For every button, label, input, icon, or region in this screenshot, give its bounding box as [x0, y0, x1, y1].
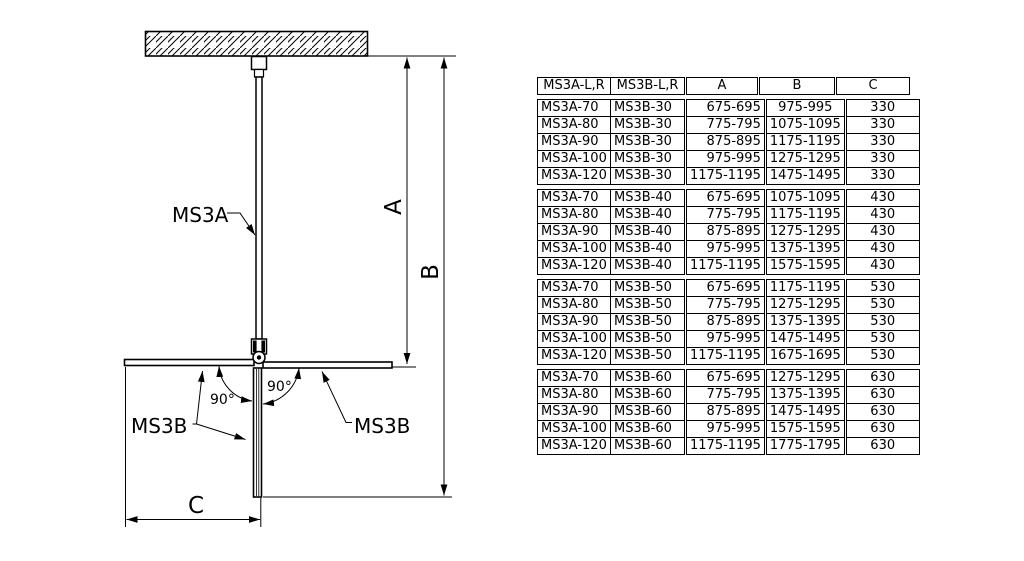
table-cell: MS3A-70 [538, 190, 611, 207]
table-cell: 530 [845, 314, 919, 331]
table-row: MS3A-120MS3B-501175-11951675-1695530 [538, 348, 920, 365]
table-cell: 675-695 [686, 280, 766, 297]
spec-table-block: MS3A-70MS3B-60675-6951275-1295630MS3A-80… [537, 369, 920, 455]
table-cell: 630 [845, 370, 919, 387]
table-cell: 975-995 [686, 331, 766, 348]
table-cell: MS3B-30 [611, 117, 686, 134]
table-cell: MS3B-60 [611, 387, 686, 404]
table-cell: MS3A-90 [538, 224, 611, 241]
table-cell: MS3A-90 [538, 314, 611, 331]
table-cell: 630 [845, 404, 919, 421]
table-cell: 875-895 [686, 134, 766, 151]
table-cell: 1575-1595 [765, 421, 845, 438]
table-cell: 675-695 [686, 370, 766, 387]
panel-ms3b-right [263, 362, 392, 368]
installation-diagram: A B C 90° 90° MS3A MS3B MS3B [0, 0, 530, 561]
table-header-cell: C [836, 78, 910, 95]
table-row: MS3A-80MS3B-40775-7951175-1195430 [538, 207, 920, 224]
table-cell: MS3B-40 [611, 190, 686, 207]
table-cell: 1275-1295 [765, 370, 845, 387]
table-cell: 330 [845, 151, 919, 168]
table-cell: MS3A-80 [538, 387, 611, 404]
spec-table-block: MS3A-70MS3B-50675-6951175-1195530MS3A-80… [537, 279, 920, 365]
table-cell: 630 [845, 387, 919, 404]
table-cell: 1175-1195 [686, 348, 766, 365]
table-cell: 1275-1295 [765, 224, 845, 241]
table-cell: MS3A-80 [538, 297, 611, 314]
table-cell: MS3B-60 [611, 421, 686, 438]
dim-label-a: A [381, 199, 407, 215]
table-cell: 1475-1495 [765, 168, 845, 185]
catalog-page: A B C 90° 90° MS3A MS3B MS3B MS3A-L,R MS… [0, 0, 1024, 561]
dim-label-b: B [418, 264, 444, 280]
ceiling-bracket-neck [255, 70, 264, 78]
table-blocks: MS3A-70MS3B-30675-695975-995330MS3A-80MS… [537, 99, 920, 455]
table-header-row: MS3A-L,R MS3B-L,R A B C [537, 77, 910, 95]
table-cell: 1075-1095 [765, 190, 845, 207]
table-cell: 430 [845, 258, 919, 275]
label-ms3b-left: MS3B [131, 414, 187, 438]
table-cell: 1175-1195 [765, 134, 845, 151]
table-cell: 1475-1495 [765, 331, 845, 348]
table-cell: MS3B-60 [611, 438, 686, 455]
table-row: MS3A-120MS3B-301175-11951475-1495330 [538, 168, 920, 185]
table-cell: 975-995 [686, 421, 766, 438]
ceiling-hatch [146, 32, 368, 57]
dim-label-c: C [188, 493, 204, 519]
table-cell: 1375-1395 [765, 314, 845, 331]
table-row: MS3A-100MS3B-50975-9951475-1495530 [538, 331, 920, 348]
table-cell: 1775-1795 [765, 438, 845, 455]
table-row: MS3A-70MS3B-50675-6951175-1195530 [538, 280, 920, 297]
table-header-cell: B [759, 78, 836, 95]
table-cell: MS3B-50 [611, 297, 686, 314]
table-cell: MS3B-60 [611, 370, 686, 387]
table-cell: MS3B-50 [611, 280, 686, 297]
table-cell: 1375-1395 [765, 387, 845, 404]
table-cell: MS3B-40 [611, 241, 686, 258]
label-ms3b-right: MS3B [354, 414, 410, 438]
table-row: MS3A-80MS3B-30775-7951075-1095330 [538, 117, 920, 134]
table-cell: 430 [845, 207, 919, 224]
table-cell: MS3B-50 [611, 314, 686, 331]
table-header-cell: MS3A-L,R [538, 78, 611, 95]
dimension-table: MS3A-L,R MS3B-L,R A B C MS3A-70MS3B-3067… [537, 77, 920, 455]
table-cell: 675-695 [686, 190, 766, 207]
pole-ms3a [256, 77, 262, 339]
table-cell: 1175-1195 [765, 280, 845, 297]
table-cell: 430 [845, 190, 919, 207]
table-cell: 875-895 [686, 224, 766, 241]
table-cell: MS3B-30 [611, 134, 686, 151]
table-cell: 530 [845, 331, 919, 348]
table-cell: MS3A-80 [538, 117, 611, 134]
table-row: MS3A-70MS3B-60675-6951275-1295630 [538, 370, 920, 387]
table-cell: 530 [845, 297, 919, 314]
table-cell: MS3A-70 [538, 100, 611, 117]
table-cell: 1575-1595 [765, 258, 845, 275]
table-cell: MS3A-80 [538, 207, 611, 224]
junction-hinge-pin [257, 355, 261, 359]
table-cell: MS3A-70 [538, 280, 611, 297]
table-cell: MS3A-90 [538, 134, 611, 151]
table-cell: 975-995 [765, 100, 845, 117]
table-cell: 1375-1395 [765, 241, 845, 258]
panel-ms3b-left [125, 360, 255, 366]
table-cell: MS3A-120 [538, 438, 611, 455]
table-cell: 530 [845, 280, 919, 297]
table-row: MS3A-100MS3B-60975-9951575-1595630 [538, 421, 920, 438]
table-cell: MS3A-90 [538, 404, 611, 421]
table-cell: 630 [845, 421, 919, 438]
panel-ms3b-bottom [254, 368, 262, 497]
table-cell: MS3B-30 [611, 100, 686, 117]
table-cell: 1175-1195 [686, 438, 766, 455]
table-cell: 330 [845, 100, 919, 117]
table-cell: 330 [845, 134, 919, 151]
leader-ms3b-right [322, 372, 352, 423]
spec-table-block: MS3A-70MS3B-40675-6951075-1095430MS3A-80… [537, 189, 920, 275]
table-cell: 630 [845, 438, 919, 455]
table-row: MS3A-90MS3B-40875-8951275-1295430 [538, 224, 920, 241]
table-row: MS3A-L,R MS3B-L,R A B C [538, 78, 910, 95]
table-cell: 1175-1195 [686, 258, 766, 275]
table-header-cell: MS3B-L,R [611, 78, 686, 95]
table-row: MS3A-90MS3B-50875-8951375-1395530 [538, 314, 920, 331]
ceiling-bracket [252, 57, 267, 70]
table-cell: 530 [845, 348, 919, 365]
table-cell: MS3B-30 [611, 168, 686, 185]
table-cell: MS3B-40 [611, 224, 686, 241]
table-cell: 975-995 [686, 151, 766, 168]
table-cell: 675-695 [686, 100, 766, 117]
table-cell: 775-795 [686, 117, 766, 134]
table-cell: 875-895 [686, 404, 766, 421]
table-cell: 430 [845, 241, 919, 258]
table-cell: MS3A-120 [538, 258, 611, 275]
label-ms3a: MS3A [172, 203, 229, 227]
junction-clamp-side [253, 341, 257, 353]
table-cell: MS3A-100 [538, 241, 611, 258]
table-cell: 875-895 [686, 314, 766, 331]
table-row: MS3A-100MS3B-30975-9951275-1295330 [538, 151, 920, 168]
table-cell: MS3A-100 [538, 331, 611, 348]
table-row: MS3A-90MS3B-60875-8951475-1495630 [538, 404, 920, 421]
table-cell: 1275-1295 [765, 151, 845, 168]
leader-ms3b-left-up [193, 371, 203, 424]
table-cell: MS3B-50 [611, 331, 686, 348]
leader-ms3b-left-down [197, 424, 246, 440]
table-cell: 330 [845, 117, 919, 134]
table-cell: 775-795 [686, 387, 766, 404]
junction-clamp-side [261, 341, 265, 353]
table-cell: 1475-1495 [765, 404, 845, 421]
table-cell: 775-795 [686, 207, 766, 224]
table-cell: MS3A-120 [538, 348, 611, 365]
table-cell: 1675-1695 [765, 348, 845, 365]
table-row: MS3A-120MS3B-401175-11951575-1595430 [538, 258, 920, 275]
table-cell: MS3B-30 [611, 151, 686, 168]
table-row: MS3A-70MS3B-40675-6951075-1095430 [538, 190, 920, 207]
table-cell: 1075-1095 [765, 117, 845, 134]
table-header-cell: A [686, 78, 759, 95]
angle-label-left: 90° [210, 392, 235, 408]
table-row: MS3A-80MS3B-60775-7951375-1395630 [538, 387, 920, 404]
table-cell: MS3A-100 [538, 421, 611, 438]
table-row: MS3A-70MS3B-30675-695975-995330 [538, 100, 920, 117]
table-row: MS3A-120MS3B-601175-11951775-1795630 [538, 438, 920, 455]
angle-label-right: 90° [267, 379, 292, 395]
table-cell: 975-995 [686, 241, 766, 258]
table-row: MS3A-80MS3B-50775-7951275-1295530 [538, 297, 920, 314]
table-cell: 1275-1295 [765, 297, 845, 314]
table-cell: MS3A-120 [538, 168, 611, 185]
spec-table-block: MS3A-70MS3B-30675-695975-995330MS3A-80MS… [537, 99, 920, 185]
leader-ms3a [227, 213, 255, 235]
table-row: MS3A-100MS3B-40975-9951375-1395430 [538, 241, 920, 258]
table-cell: MS3B-40 [611, 258, 686, 275]
table-row: MS3A-90MS3B-30875-8951175-1195330 [538, 134, 920, 151]
table-cell: 1175-1195 [765, 207, 845, 224]
table-cell: 430 [845, 224, 919, 241]
table-cell: MS3A-100 [538, 151, 611, 168]
table-cell: MS3A-70 [538, 370, 611, 387]
table-cell: 330 [845, 168, 919, 185]
table-cell: 775-795 [686, 297, 766, 314]
table-cell: MS3B-40 [611, 207, 686, 224]
table-cell: MS3B-60 [611, 404, 686, 421]
table-cell: MS3B-50 [611, 348, 686, 365]
table-cell: 1175-1195 [686, 168, 766, 185]
